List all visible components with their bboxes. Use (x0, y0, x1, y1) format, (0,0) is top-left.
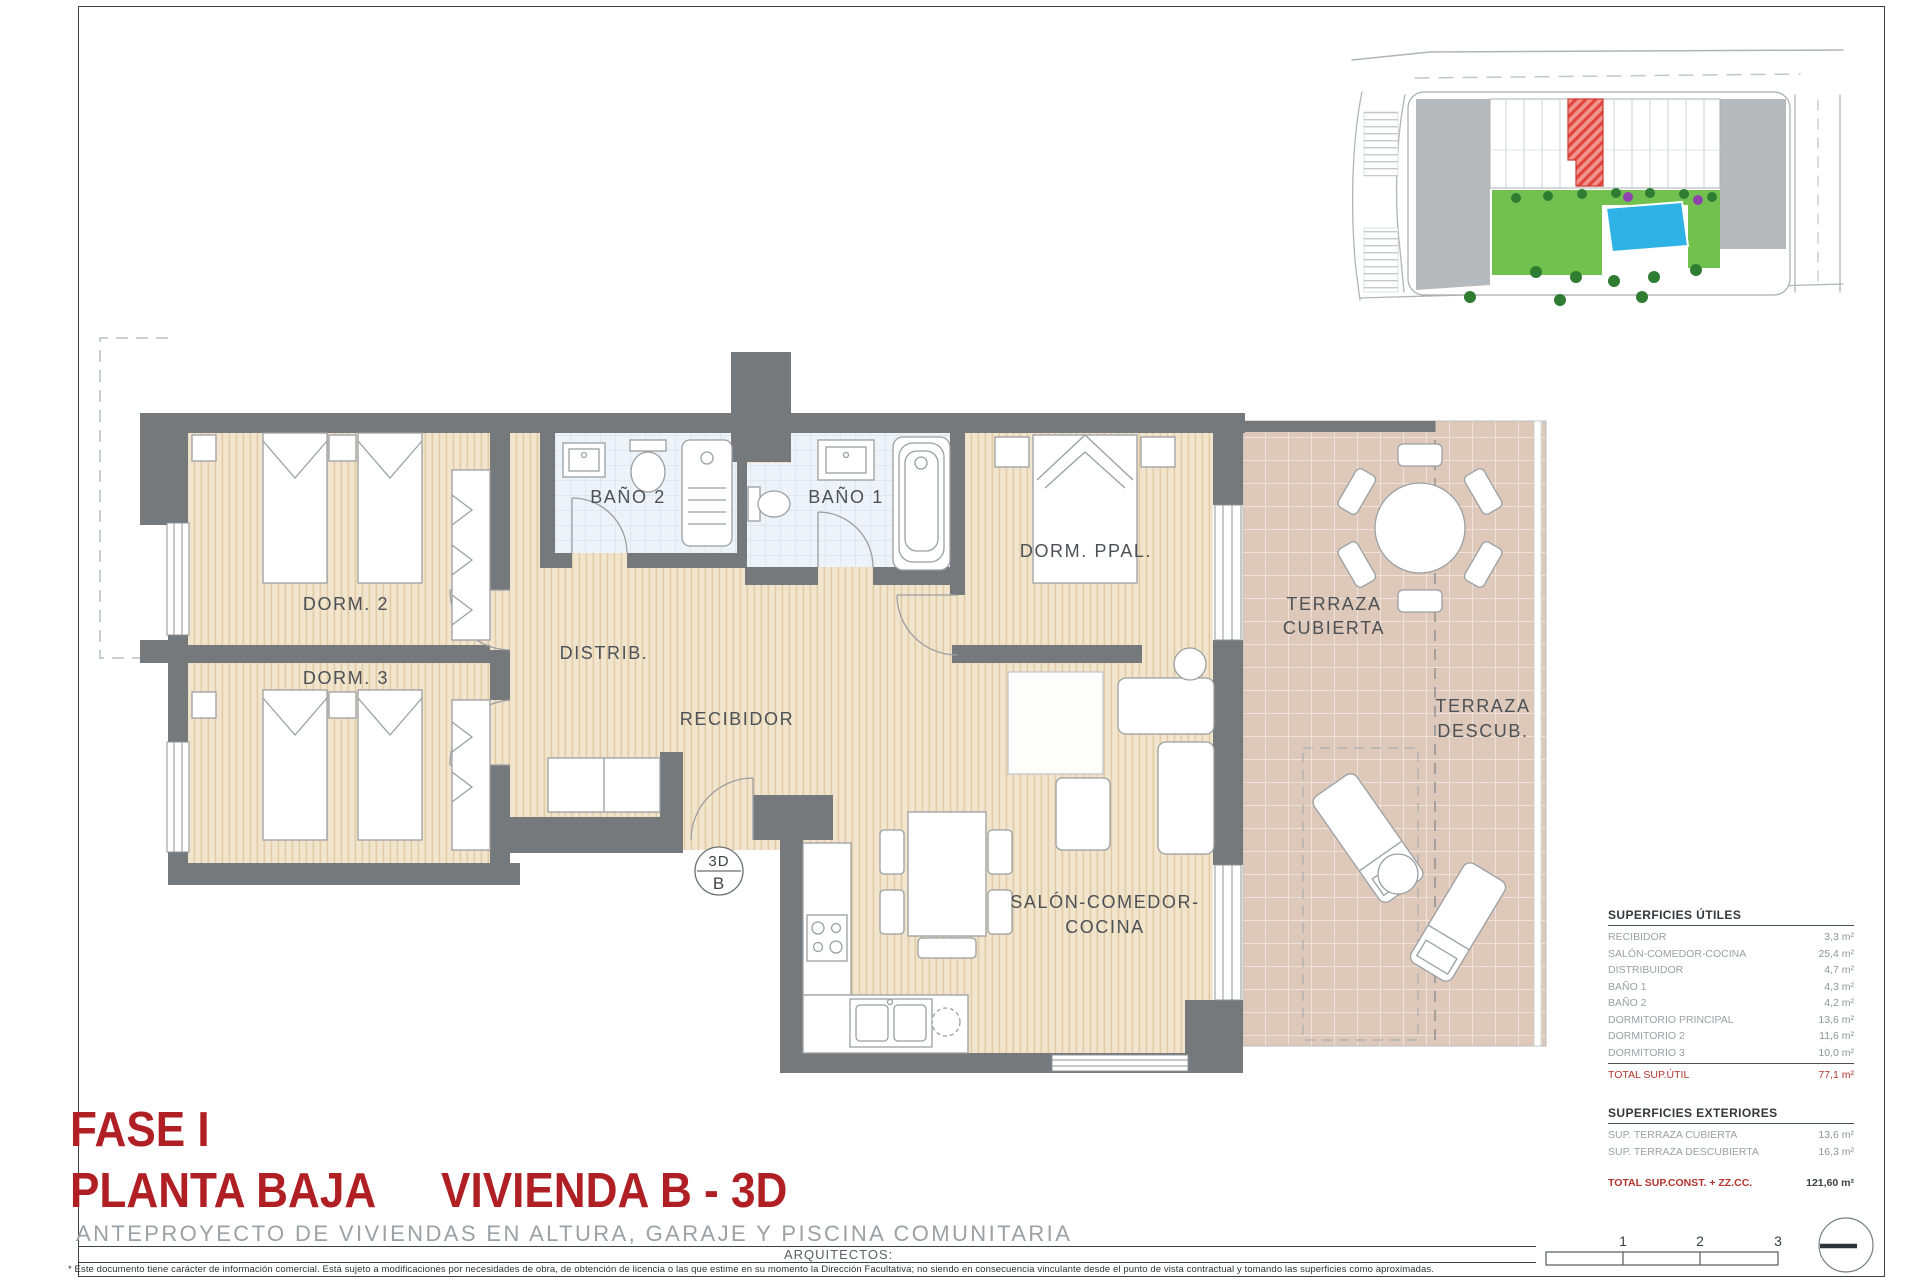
terrace-round-table (1375, 483, 1465, 573)
scale-tick-1: 1 (1619, 1233, 1627, 1249)
bano1-sink (818, 440, 874, 480)
bano1-bathtub (893, 437, 950, 570)
drawing-sheet: DORM. 2 DORM. 3 BAÑO 2 BAÑO 1 DISTRIB. R… (0, 0, 1920, 1280)
sofa-right (1158, 742, 1214, 854)
total-label: TOTAL SUP.ÚTIL (1608, 1066, 1689, 1084)
window-dorm3 (167, 742, 189, 852)
bano2-toilet (630, 440, 666, 492)
label-terraza-descub-2: DESCUB. (1437, 721, 1528, 741)
table-superficies-exteriores: SUPERFICIES EXTERIORES SUP. TERRAZA CUBI… (1608, 1106, 1854, 1192)
phase-title: FASE I (70, 1100, 787, 1160)
total-const-row: TOTAL SUP.CONST. + ZZ.CC.121,60 m² (1608, 1174, 1854, 1192)
site-building-left (1416, 99, 1490, 290)
architects-label: ARQUITECTOS: (784, 1247, 893, 1262)
area-row-label: BAÑO 2 (1608, 995, 1647, 1012)
area-row-value: 13,6 m² (1818, 1127, 1854, 1144)
label-terraza-descub-1: TERRAZA (1435, 696, 1530, 716)
site-plan-minimap (1352, 50, 1843, 306)
total-value: 121,60 m² (1806, 1174, 1854, 1192)
window-dorm2 (167, 523, 189, 635)
scale-tick-3: 3 (1774, 1233, 1782, 1249)
hall-closet (548, 758, 660, 812)
kitchen-washer (932, 1008, 960, 1036)
label-terraza-cubierta-1: TERRAZA (1286, 594, 1381, 614)
area-row-value: 16,3 m² (1818, 1144, 1854, 1161)
table-row: DISTRIBUIDOR4,7 m² (1608, 962, 1854, 979)
table-row: SALÓN-COMEDOR-COCINA25,4 m² (1608, 946, 1854, 963)
terrace-side-table (1378, 854, 1418, 894)
area-row-value: 10,0 m² (1818, 1045, 1854, 1062)
label-salon-line2: COCINA (1065, 917, 1145, 937)
table-row: BAÑO 14,3 m² (1608, 979, 1854, 996)
label-dorm3: DORM. 3 (303, 668, 389, 688)
bano2-sink (563, 443, 605, 477)
area-row-label: SALÓN-COMEDOR-COCINA (1608, 946, 1746, 963)
sofa-top (1118, 678, 1214, 734)
label-dorm-ppal: DORM. PPAL. (1020, 541, 1152, 561)
table-row: DORMITORIO 211,6 m² (1608, 1028, 1854, 1045)
area-row-value: 25,4 m² (1818, 946, 1854, 963)
table-title: SUPERFICIES EXTERIORES (1608, 1106, 1854, 1124)
scale-tick-2: 2 (1696, 1233, 1704, 1249)
area-row-value: 11,6 m² (1819, 1028, 1854, 1045)
area-row-label: DISTRIBUIDOR (1608, 962, 1683, 979)
table-title: SUPERFICIES ÚTILES (1608, 908, 1854, 926)
window-salon-south (1052, 1055, 1188, 1071)
area-row-value: 4,3 m² (1824, 979, 1854, 996)
total-label: TOTAL SUP.CONST. + ZZ.CC. (1608, 1174, 1752, 1192)
legal-disclaimer: * Este documento tiene carácter de infor… (68, 1264, 1434, 1275)
marker-type: 3D (708, 853, 729, 870)
area-row-value: 4,2 m² (1824, 995, 1854, 1012)
table-row: SUP. TERRAZA DESCUBIERTA16,3 m² (1608, 1144, 1854, 1161)
label-bano2: BAÑO 2 (590, 486, 666, 507)
living-rug (1008, 672, 1103, 774)
total-value: 77,1 m² (1818, 1066, 1854, 1084)
unit-marker: 3D B (695, 847, 743, 895)
table-row: DORMITORIO PRINCIPAL13,6 m² (1608, 1012, 1854, 1029)
armchair (1056, 778, 1110, 850)
label-recibidor: RECIBIDOR (680, 709, 794, 729)
project-subtitle: ANTEPROYECTO DE VIVIENDAS EN ALTURA, GAR… (76, 1221, 1072, 1247)
site-parking-row-1 (1364, 112, 1398, 176)
site-building-right (1720, 99, 1786, 249)
closet-dorm3 (452, 700, 490, 850)
table-row: RECIBIDOR3,3 m² (1608, 929, 1854, 946)
floor-title: PLANTA BAJA (70, 1160, 376, 1222)
site-road-top (1352, 50, 1843, 60)
round-chair (1174, 648, 1206, 680)
table-row: BAÑO 24,2 m² (1608, 995, 1854, 1012)
area-row-label: BAÑO 1 (1608, 979, 1647, 996)
shaft-column (731, 352, 791, 462)
area-tables: SUPERFICIES ÚTILES RECIBIDOR3,3 m² SALÓN… (1608, 908, 1854, 1192)
unit-title: VIVIENDA B - 3D (441, 1160, 787, 1222)
closet-dorm2 (452, 470, 490, 640)
area-row-label: SUP. TERRAZA CUBIERTA (1608, 1127, 1737, 1144)
site-residential-strip (1490, 99, 1720, 188)
label-salon-line1: SALÓN-COMEDOR- (1010, 891, 1199, 912)
title-block: FASE I PLANTA BAJA VIVIENDA B - 3D (70, 1100, 787, 1222)
marker-letter: B (713, 874, 725, 893)
label-dorm2: DORM. 2 (303, 594, 389, 614)
bano2-shower (682, 440, 732, 546)
area-row-value: 3,3 m² (1824, 929, 1854, 946)
site-parking-row-2 (1364, 228, 1398, 292)
kitchen-hob (807, 915, 847, 961)
area-row-label: DORMITORIO 2 (1608, 1028, 1685, 1045)
site-road-top-centerline (1415, 74, 1800, 78)
window-dorm-ppal-terrace (1215, 505, 1241, 640)
window-salon-terrace (1215, 865, 1241, 1000)
area-row-label: DORMITORIO 3 (1608, 1045, 1685, 1062)
area-row-value: 13,6 m² (1818, 1012, 1854, 1029)
area-row-label: SUP. TERRAZA DESCUBIERTA (1608, 1144, 1759, 1161)
total-util-row: TOTAL SUP.ÚTIL77,1 m² (1608, 1063, 1854, 1084)
terrace-edge-strip (1534, 421, 1541, 1046)
kitchen-sink (850, 999, 932, 1047)
site-road-left-outer (1353, 92, 1362, 300)
area-row-value: 4,7 m² (1824, 962, 1854, 979)
label-distrib: DISTRIB. (560, 643, 649, 663)
scale-bar: 1 2 3 (1546, 1233, 1782, 1265)
table-row: DORMITORIO 310,0 m² (1608, 1045, 1854, 1062)
table-superficies-utiles: SUPERFICIES ÚTILES RECIBIDOR3,3 m² SALÓN… (1608, 908, 1854, 1084)
north-symbol-icon (1819, 1218, 1873, 1272)
site-pool (1606, 202, 1688, 252)
label-bano1: BAÑO 1 (808, 486, 884, 507)
label-terraza-cubierta-2: CUBIERTA (1283, 618, 1385, 638)
area-row-label: DORMITORIO PRINCIPAL (1608, 1012, 1734, 1029)
area-row-label: RECIBIDOR (1608, 929, 1666, 946)
table-row: SUP. TERRAZA CUBIERTA13,6 m² (1608, 1127, 1854, 1144)
